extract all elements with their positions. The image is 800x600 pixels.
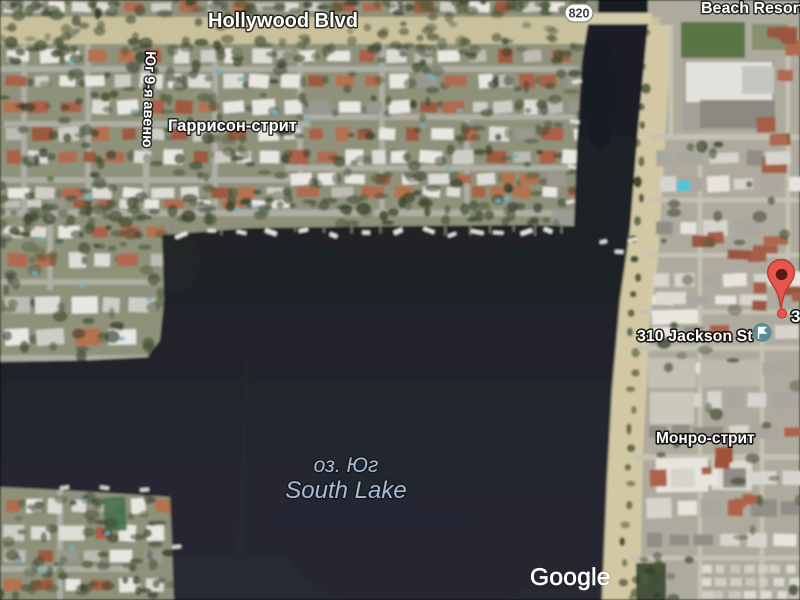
svg-text:Google: Google <box>530 564 611 591</box>
svg-text:310 Jackson St: 310 Jackson St <box>637 328 753 345</box>
svg-text:оз. Юг: оз. Юг <box>314 454 379 477</box>
svg-text:Монро-стрит: Монро-стрит <box>656 430 755 447</box>
svg-text:Hollywood Blvd: Hollywood Blvd <box>208 10 358 32</box>
svg-text:Гаррисон-стрит: Гаррисон-стрит <box>168 117 297 135</box>
svg-text:South Lake: South Lake <box>285 477 406 504</box>
svg-text:Юг 9-я авеню: Юг 9-я авеню <box>139 51 158 148</box>
svg-text:Beach Resort: Beach Resort <box>701 0 800 17</box>
svg-text:820: 820 <box>569 7 590 21</box>
svg-text:31: 31 <box>791 307 800 326</box>
